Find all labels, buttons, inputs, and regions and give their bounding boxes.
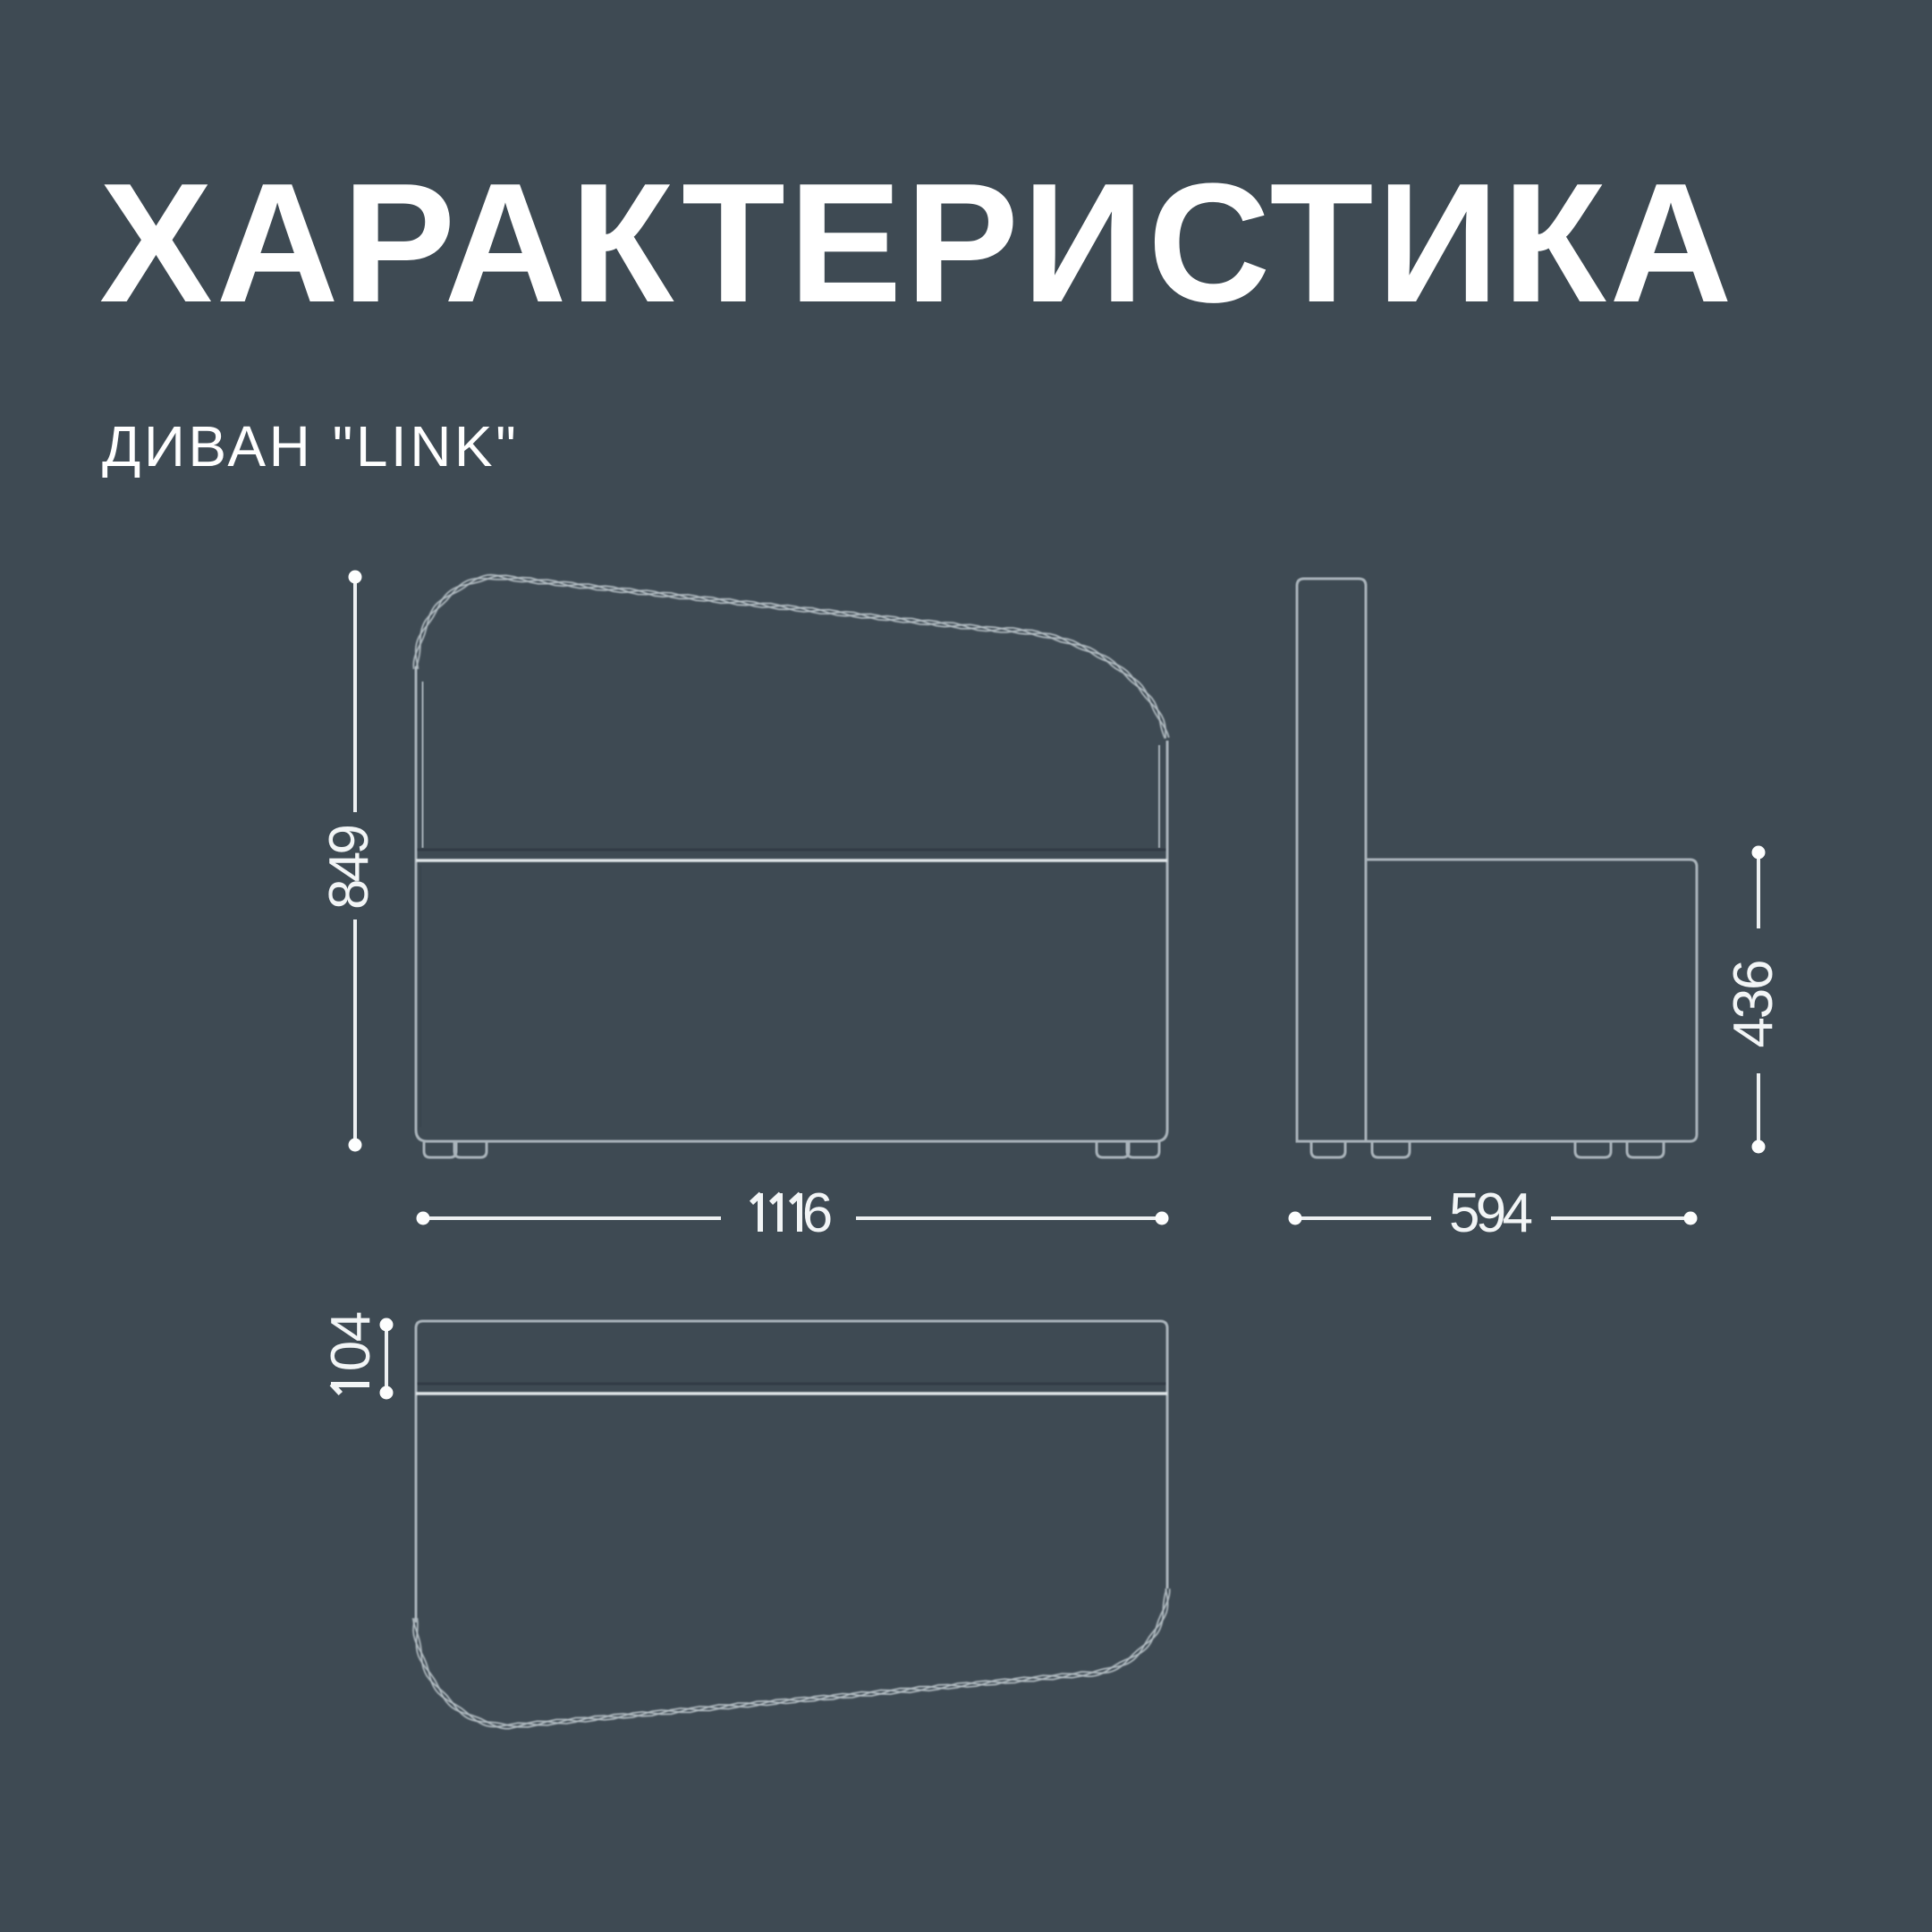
- svg-text:436: 436: [1723, 960, 1784, 1048]
- svg-text:6: 6: [802, 1182, 833, 1244]
- svg-text:0: 0: [320, 1341, 382, 1371]
- svg-text:849: 849: [318, 824, 380, 910]
- svg-text:4: 4: [320, 1311, 382, 1342]
- svg-text:594: 594: [1449, 1182, 1533, 1244]
